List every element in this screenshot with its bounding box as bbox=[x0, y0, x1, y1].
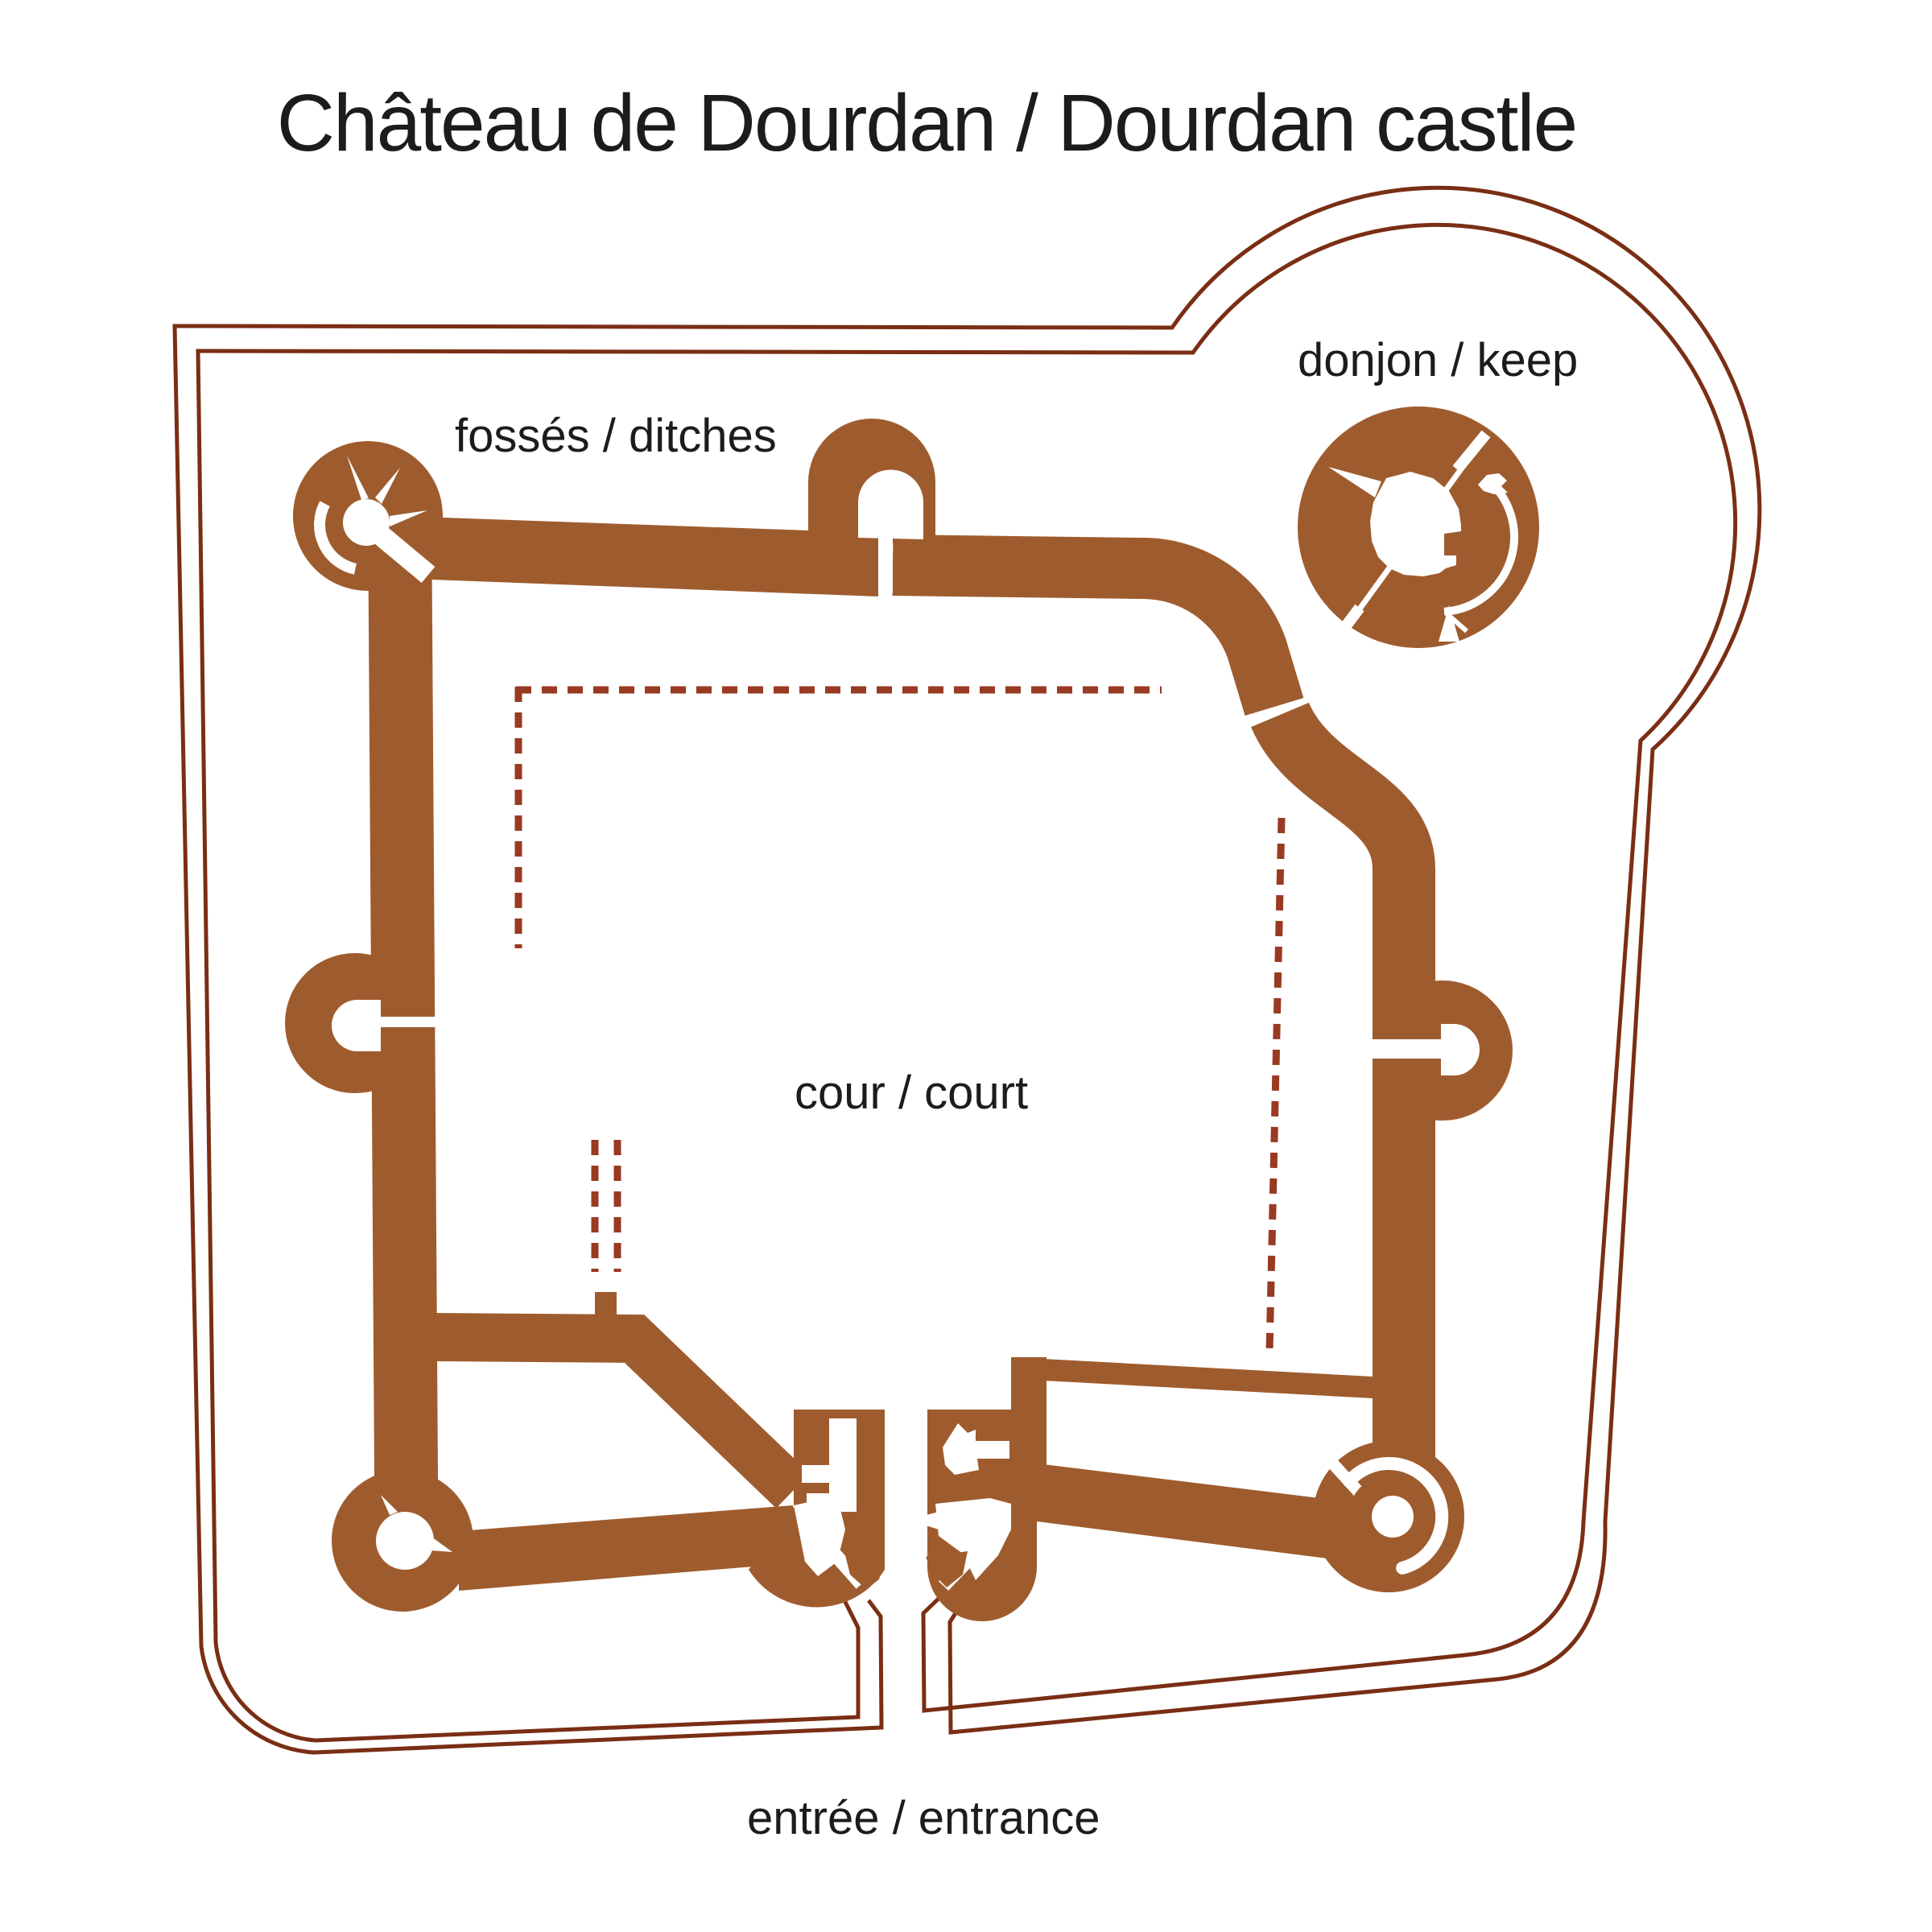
svg-text:fossés / ditches: fossés / ditches bbox=[455, 410, 777, 462]
svg-text:Château de Dourdan / Dourdan c: Château de Dourdan / Dourdan castle bbox=[277, 78, 1576, 168]
svg-text:donjon / keep: donjon / keep bbox=[1298, 334, 1578, 386]
svg-text:cour / court: cour / court bbox=[795, 1067, 1028, 1119]
svg-text:entrée / entrance: entrée / entrance bbox=[747, 1792, 1100, 1844]
